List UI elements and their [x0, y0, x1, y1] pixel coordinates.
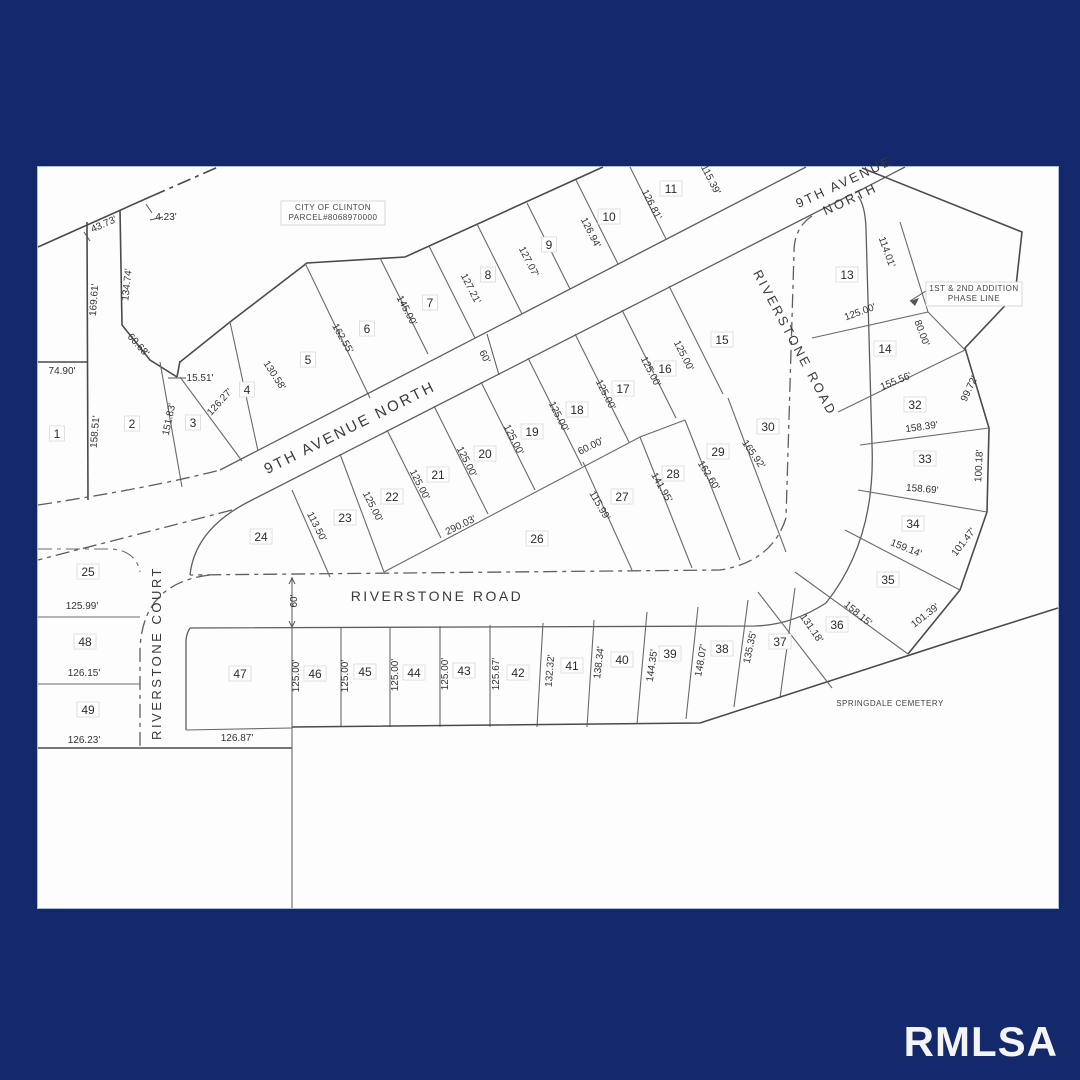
- lot-number: 8: [485, 268, 492, 282]
- lot-number: 38: [715, 642, 729, 656]
- lot-number: 49: [81, 703, 95, 717]
- lot-number: 9: [546, 238, 553, 252]
- dimension-label: 126.27': [205, 387, 235, 419]
- dimension-label: 100.18': [973, 449, 986, 482]
- dimension-label: 126.15': [68, 668, 101, 679]
- lot-number: 13: [840, 268, 854, 282]
- dimension-label: 101.39': [909, 602, 941, 631]
- lot-number: 33: [918, 452, 932, 466]
- dimension-label: 125.00': [291, 660, 302, 693]
- lot-number: 21: [431, 468, 445, 482]
- dimension-label: 165.92': [739, 438, 767, 471]
- annotation-text: 1ST & 2ND ADDITION: [929, 284, 1018, 293]
- lot-number: 43: [457, 664, 471, 678]
- annotations: CITY OF CLINTONPARCEL#80689700001ST & 2N…: [281, 201, 1022, 708]
- dimension-label: 169.61': [88, 283, 101, 316]
- lot-number: 3: [190, 416, 197, 430]
- street-label: 9TH AVENUE NORTH: [261, 378, 438, 478]
- lot-number: 23: [338, 511, 352, 525]
- lot-number: 29: [711, 445, 725, 459]
- dimension-label: 158.51': [89, 415, 103, 448]
- dimension-label: 158.39': [905, 420, 939, 435]
- dimension-label: 125.67': [491, 658, 502, 691]
- dimension-label: 60.00': [576, 436, 605, 458]
- lot-number: 22: [385, 490, 399, 504]
- plat-map-svg: CITY OF CLINTONPARCEL#80689700001ST & 2N…: [0, 0, 1080, 1080]
- dimension-label: 290.03': [444, 514, 478, 538]
- dimension-label: 115.39': [698, 163, 722, 196]
- dimension-label: 114.01': [876, 235, 897, 269]
- lot-number: 40: [615, 653, 629, 667]
- lot-number: 20: [478, 447, 492, 461]
- dimension-label: 131.18': [797, 612, 825, 645]
- dimension-label: 134.74': [120, 268, 134, 302]
- lot-number: 48: [78, 635, 92, 649]
- lot-number: 18: [570, 403, 584, 417]
- dimension-label: 159.14': [889, 537, 923, 559]
- dimension-label: 158.69': [906, 483, 939, 497]
- dimension-label: 126.23': [68, 735, 101, 746]
- dimension-label: 162.55': [329, 322, 355, 356]
- dimension-label: 126.87': [221, 733, 254, 744]
- lot-number: 19: [525, 425, 539, 439]
- lot-number: 32: [908, 398, 922, 412]
- lot-number: 16: [658, 362, 672, 376]
- lot-number: 36: [830, 618, 844, 632]
- dimension-label: 151.83': [161, 402, 179, 436]
- street-label: RIVERSTONE COURT: [149, 566, 164, 740]
- lot-number: 28: [666, 467, 680, 481]
- lot-number: 35: [881, 573, 895, 587]
- lot-number: 41: [565, 659, 579, 673]
- dimension-label: 138.34': [592, 646, 607, 680]
- lot-number: 44: [407, 666, 421, 680]
- dimension-labels: 43.73'4.23'134.74'169.61'74.90'60.68'15.…: [49, 163, 986, 746]
- dimension-label: 4.23': [155, 212, 176, 223]
- dimension-label: 155.56': [879, 370, 913, 392]
- dimension-label: 125.00': [843, 302, 877, 323]
- mls-photo-frame: CITY OF CLINTONPARCEL#80689700001ST & 2N…: [0, 0, 1080, 1080]
- lot-number: 1: [54, 427, 61, 441]
- dimension-label: 127.07': [516, 245, 541, 279]
- dimension-label: 80.00': [912, 319, 932, 348]
- lot-number: 4: [244, 383, 251, 397]
- lot-number: 14: [878, 342, 892, 356]
- lot-number: 10: [602, 210, 616, 224]
- annotation-text: PHASE LINE: [948, 294, 1000, 303]
- lot-number: 15: [715, 333, 729, 347]
- dimension-label: 60.68': [125, 332, 151, 359]
- dimension-label: 74.90': [49, 366, 76, 377]
- annotation-text: SPRINGDALE CEMETERY: [836, 699, 944, 708]
- dimension-label: 125.00': [390, 659, 401, 692]
- lot-number: 5: [305, 353, 312, 367]
- lot-number: 2: [129, 417, 136, 431]
- lot-number: 6: [364, 322, 371, 336]
- annotation-text: PARCEL#8068970000: [289, 213, 378, 222]
- lot-number: 46: [308, 667, 322, 681]
- dimension-label: 60': [476, 349, 492, 366]
- lot-number: 39: [663, 647, 677, 661]
- dimension-label: 148.07': [693, 644, 709, 678]
- lot-number: 17: [616, 382, 630, 396]
- dimension-label: 15.51': [187, 373, 214, 384]
- dimension-label: 115.99': [586, 489, 611, 522]
- lot-number: 7: [427, 296, 434, 310]
- dimension-label: 135.35': [742, 630, 760, 664]
- dimension-label: 127.21': [458, 272, 483, 306]
- dimension-label: 144.35': [645, 649, 660, 683]
- lot-number: 37: [773, 635, 787, 649]
- lot-number: 11: [665, 182, 678, 196]
- street-label: RIVERSTONE ROAD: [750, 267, 840, 418]
- dimension-label: 125.99': [66, 601, 99, 612]
- lot-number: 42: [511, 666, 525, 680]
- lot-number: 26: [530, 532, 544, 546]
- lot-number: 47: [233, 667, 247, 681]
- lot-number: 30: [761, 420, 775, 434]
- lot-number: 27: [615, 490, 629, 504]
- dimension-label: 125.00': [340, 660, 351, 693]
- lot-number: 34: [906, 517, 920, 531]
- lot-number: 25: [81, 565, 95, 579]
- lot-number: 45: [358, 665, 372, 679]
- dimension-label: 145.00': [394, 294, 419, 328]
- dimension-label: 125.00': [440, 658, 451, 691]
- street-label: RIVERSTONE ROAD: [351, 588, 524, 604]
- dimension-label: 101.47': [950, 526, 979, 558]
- dimension-label: 60': [289, 594, 300, 607]
- dimension-label: 132.32': [544, 654, 558, 687]
- dimension-label: 162.60': [695, 459, 722, 492]
- lot-number: 24: [254, 530, 268, 544]
- annotation-text: CITY OF CLINTON: [295, 203, 371, 212]
- rmlsa-watermark: RMLSA: [904, 1018, 1058, 1066]
- lot-numbers: 1234567891011131415161718192021222324252…: [50, 181, 937, 717]
- dimension-label: 130.58': [261, 359, 288, 392]
